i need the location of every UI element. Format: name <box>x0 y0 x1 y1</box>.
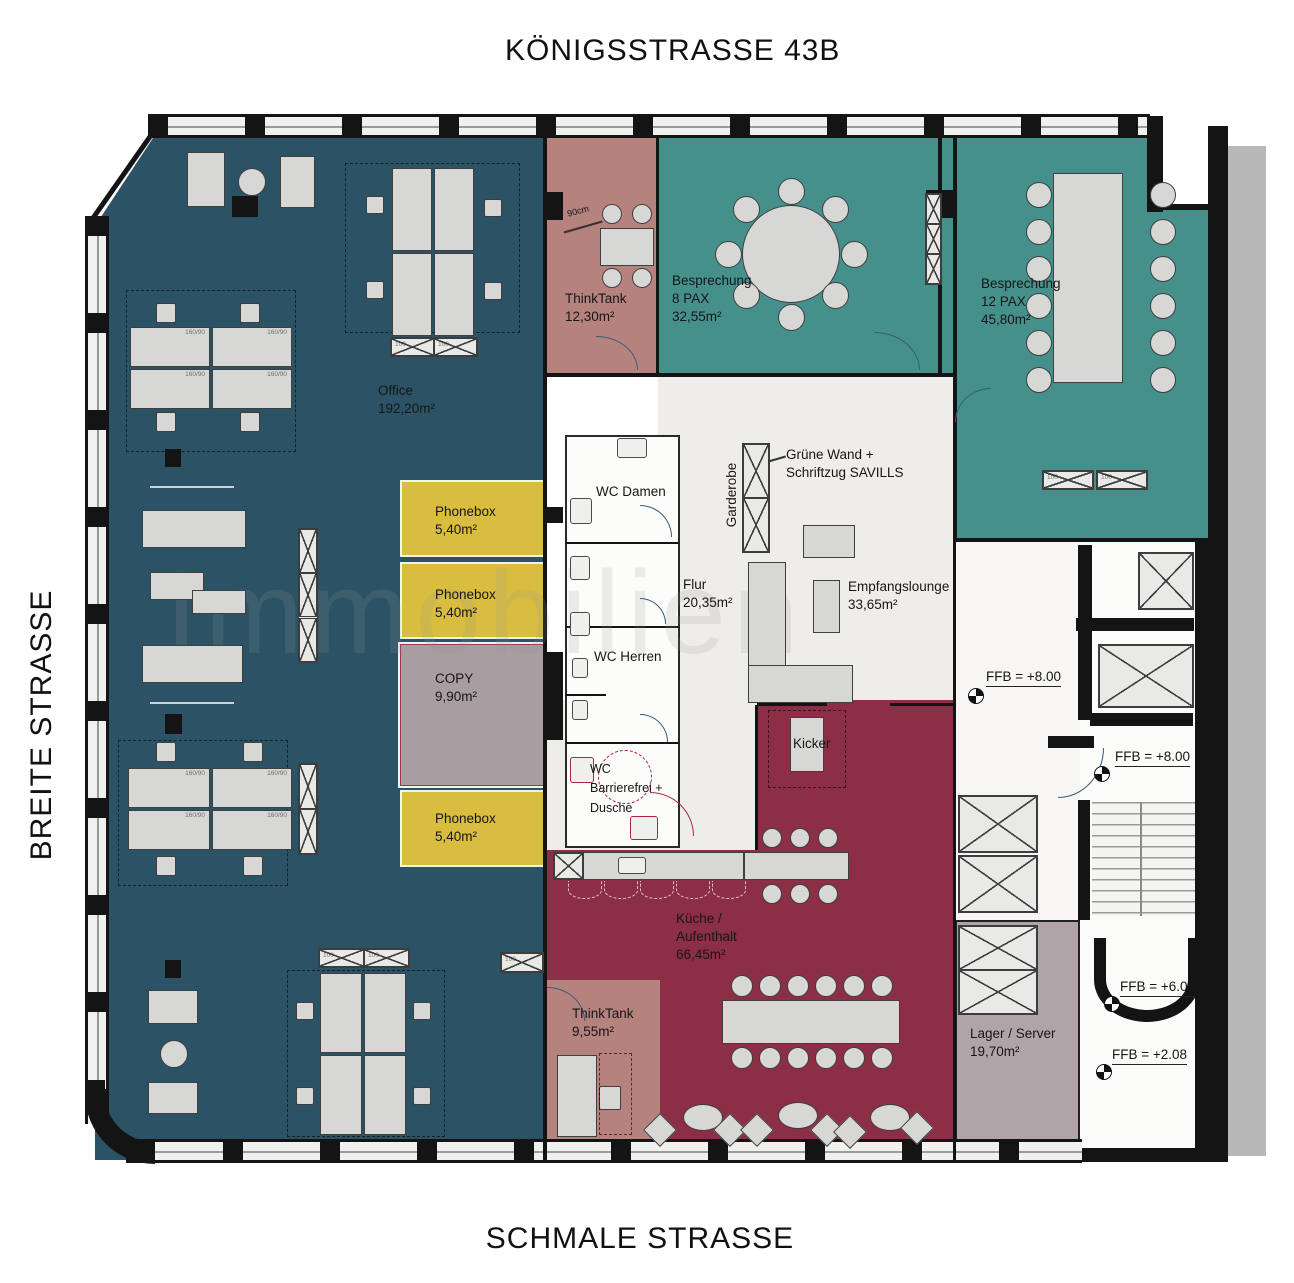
chair <box>156 303 176 323</box>
column <box>165 960 181 978</box>
desk: 160/90 <box>128 810 210 850</box>
chair <box>366 196 384 214</box>
sideboard: 100 <box>1042 470 1094 490</box>
desk-dim-label: 160/90 <box>185 329 205 336</box>
label-gruene-wand: Grüne Wand + Schriftzug SAVILLS <box>786 446 904 482</box>
desk <box>280 156 315 208</box>
toilet-icon <box>570 612 590 636</box>
chair <box>296 1087 314 1105</box>
shelving <box>958 925 1038 1015</box>
column <box>232 196 258 217</box>
chair <box>1150 330 1176 356</box>
chair <box>822 196 849 223</box>
chair <box>1150 182 1176 208</box>
zone-outline <box>599 1053 632 1135</box>
survey-marker-icon <box>968 688 984 704</box>
label-kicker: Kicker <box>793 735 831 753</box>
desk <box>557 1055 597 1137</box>
chair <box>778 178 805 205</box>
survey-marker-icon <box>1094 766 1110 782</box>
sideboard-dim-label: 100 <box>368 952 379 959</box>
x-cell <box>299 529 317 573</box>
label-empfangslounge: Empfangslounge 33,65m² <box>848 578 949 614</box>
label-phonebox-2: Phonebox 5,40m² <box>435 586 496 622</box>
chair <box>632 204 652 224</box>
desk: 160/90 <box>212 369 292 409</box>
cabinet-arc-icon <box>676 881 710 899</box>
sideboard <box>925 193 942 285</box>
chair <box>822 282 849 309</box>
x-cell <box>926 254 941 284</box>
sideboard <box>803 525 855 558</box>
desk: 160/90 <box>212 768 292 808</box>
label-phonebox-3: Phonebox 5,40m² <box>435 810 496 846</box>
column <box>165 714 182 734</box>
round-table <box>160 1040 188 1068</box>
x-cell <box>959 926 1037 970</box>
label-thinktank-bottom: ThinkTank 9,55m² <box>572 1005 634 1041</box>
furniture-layer: 100100160/90160/90160/90160/90160/90160/… <box>0 0 1294 1283</box>
toilet-icon <box>570 556 590 580</box>
chair <box>841 241 868 268</box>
urinal-icon <box>572 700 588 720</box>
label-wc-barrierefrei: WC Barrierefrei + Dusche <box>590 760 663 818</box>
x-cell: 100 <box>1043 471 1093 489</box>
cabinet-arc-icon <box>568 881 602 899</box>
x-cell: 100 <box>364 949 409 967</box>
label-ffb-6: FFB = +6.01 <box>1120 978 1195 996</box>
urinal-icon <box>572 658 588 678</box>
chair <box>240 303 260 323</box>
floor-plan: KÖNIGSSTRASSE 43B BREITE STRASSE SCHMALE… <box>0 0 1294 1283</box>
chair <box>602 204 622 224</box>
divider-line <box>150 486 234 488</box>
chair <box>759 1047 781 1069</box>
label-copy: COPY 9,90m² <box>435 670 477 706</box>
desk: 160/90 <box>212 810 292 850</box>
desk <box>320 1055 362 1135</box>
chair <box>1150 367 1176 393</box>
desk <box>187 152 225 207</box>
chair <box>296 1002 314 1020</box>
kitchen-counter <box>553 852 849 880</box>
chair <box>1150 219 1176 245</box>
sideboard: 100 <box>1096 470 1148 490</box>
desk-dim-label: 160/90 <box>185 770 205 777</box>
cabinet-arc-icon <box>604 881 638 899</box>
x-cell: 100 <box>319 949 364 967</box>
chair <box>843 1047 865 1069</box>
chair <box>843 975 865 997</box>
x-cell <box>299 573 317 617</box>
toilet-icon <box>570 498 592 524</box>
sofa <box>142 645 243 683</box>
x-cell: 100 <box>1097 471 1147 489</box>
chair <box>871 1047 893 1069</box>
sink-icon <box>618 857 646 874</box>
desk <box>434 168 474 251</box>
door-arc <box>640 505 672 537</box>
chair <box>787 975 809 997</box>
label-besprechung-8: Besprechung 8 PAX 32,55m² <box>672 272 752 327</box>
label-besprechung-12: Besprechung 12 PAX 45,80m² <box>981 275 1061 330</box>
survey-marker-icon <box>1104 996 1120 1012</box>
door-arc <box>596 336 638 370</box>
desk-dim-label: 160/90 <box>267 812 287 819</box>
zone-outline <box>345 163 520 333</box>
chair <box>733 196 760 223</box>
column <box>547 507 563 523</box>
chair <box>762 884 782 904</box>
chair <box>715 241 742 268</box>
chair <box>156 412 176 432</box>
label-lager: Lager / Server 19,70m² <box>970 1025 1056 1061</box>
survey-marker-icon <box>1096 1064 1112 1080</box>
door-arc <box>640 714 668 742</box>
chair <box>1150 256 1176 282</box>
chair <box>413 1087 431 1105</box>
desk <box>364 973 406 1053</box>
sofa <box>142 510 246 548</box>
sideboard-dim-label: 100 <box>323 952 334 959</box>
chair <box>818 828 838 848</box>
x-cell <box>743 498 769 552</box>
desk <box>434 253 474 336</box>
chair <box>731 975 753 997</box>
column <box>547 652 563 740</box>
desk: 160/90 <box>130 327 210 367</box>
label-ffb-2: FFB = +2.08 <box>1112 1046 1187 1064</box>
desk <box>364 1055 406 1135</box>
x-cell <box>926 224 941 254</box>
label-ffb-8-lower: FFB = +8.00 <box>1115 748 1190 766</box>
chair <box>243 742 263 762</box>
round-table <box>238 168 266 196</box>
x-cell <box>959 970 1037 1014</box>
label-wc-herren: WC Herren <box>594 648 662 666</box>
desk-dim-label: 160/90 <box>267 770 287 777</box>
label-kueche: Küche / Aufenthalt 66,45m² <box>676 910 737 965</box>
desk <box>392 253 432 336</box>
x-cell: 100 <box>434 338 477 356</box>
desk <box>320 973 362 1053</box>
divider-line <box>743 853 745 879</box>
sideboard: 100100 <box>318 948 410 968</box>
chair <box>602 268 622 288</box>
label-office: Office 192,20m² <box>378 382 435 418</box>
elevator <box>1098 644 1194 708</box>
sideboard: 100 <box>500 952 544 973</box>
chair <box>1026 330 1052 356</box>
sideboard <box>298 763 318 855</box>
label-flur: Flur 20,35m² <box>683 576 733 612</box>
x-cell <box>299 618 317 662</box>
chair <box>815 975 837 997</box>
desk-dim-label: 160/90 <box>185 371 205 378</box>
dining-table <box>722 1000 900 1044</box>
desk-dim-label: 160/90 <box>185 812 205 819</box>
sideboard-dim-label: 100 <box>438 341 449 348</box>
x-cell <box>299 809 317 854</box>
desk: 160/90 <box>212 327 292 367</box>
chair <box>1026 219 1052 245</box>
x-cell: 100 <box>501 953 543 972</box>
label-garderobe: Garderobe <box>723 445 739 545</box>
desk-dim-label: 160/90 <box>267 371 287 378</box>
x-cell <box>959 796 1037 852</box>
desk <box>148 990 198 1024</box>
chair <box>731 1047 753 1069</box>
sofa <box>748 665 853 703</box>
sideboard <box>553 852 584 880</box>
desk <box>192 590 246 614</box>
chair <box>762 828 782 848</box>
pouf <box>643 1113 677 1147</box>
chair <box>243 856 263 876</box>
label-wc-damen: WC Damen <box>596 483 666 501</box>
x-cell <box>1099 645 1193 707</box>
chair <box>778 304 805 331</box>
chair <box>632 268 652 288</box>
chair <box>484 282 502 300</box>
divider-line <box>150 702 234 704</box>
chair <box>1026 367 1052 393</box>
label-thinktank-top: ThinkTank 12,30m² <box>565 290 627 326</box>
chair <box>366 281 384 299</box>
chair <box>787 1047 809 1069</box>
chair <box>413 1002 431 1020</box>
desk <box>392 168 432 251</box>
pouf <box>833 1115 867 1149</box>
chair <box>1150 293 1176 319</box>
chair <box>790 828 810 848</box>
chair <box>1026 182 1052 208</box>
sink-icon <box>617 438 647 458</box>
chair <box>240 412 260 432</box>
chair <box>871 975 893 997</box>
x-cell <box>959 856 1037 912</box>
chair <box>759 975 781 997</box>
chair <box>815 1047 837 1069</box>
desk <box>148 1082 198 1114</box>
door-arc <box>874 332 920 370</box>
desk <box>1053 173 1123 383</box>
desk: 160/90 <box>130 369 210 409</box>
shelving <box>958 855 1038 913</box>
x-cell: 100 <box>391 338 434 356</box>
sideboard <box>298 528 318 663</box>
sideboard-dim-label: 100 <box>395 341 406 348</box>
door-arc <box>955 388 991 422</box>
cabinet-arc-icon <box>640 881 674 899</box>
x-cell <box>299 764 317 809</box>
column <box>165 449 181 467</box>
sideboard-dim-label: 100 <box>1101 474 1112 481</box>
chair <box>484 199 502 217</box>
door-arc <box>640 598 666 624</box>
sideboard: 100100 <box>390 337 478 357</box>
garderobe-wardrobe <box>742 443 770 553</box>
sideboard-dim-label: 100 <box>505 956 516 963</box>
x-cell <box>743 444 769 498</box>
shelving <box>958 795 1038 853</box>
x-cell <box>926 194 941 224</box>
chair <box>156 856 176 876</box>
desk: 160/90 <box>128 768 210 808</box>
stairs <box>1092 802 1195 916</box>
pouf <box>740 1113 774 1147</box>
cabinet-arc-icon <box>712 881 746 899</box>
label-ffb-8-upper: FFB = +8.00 <box>986 668 1061 686</box>
elevator <box>1138 552 1194 610</box>
chair <box>790 884 810 904</box>
chair <box>156 742 176 762</box>
desk-dim-label: 160/90 <box>267 329 287 336</box>
column <box>545 192 563 220</box>
x-cell <box>554 853 583 879</box>
desk <box>600 228 654 266</box>
pouf-table <box>778 1102 818 1129</box>
desk <box>813 580 840 633</box>
x-cell <box>1139 553 1193 609</box>
sideboard-dim-label: 100 <box>1047 474 1058 481</box>
chair <box>818 884 838 904</box>
label-phonebox-1: Phonebox 5,40m² <box>435 503 496 539</box>
